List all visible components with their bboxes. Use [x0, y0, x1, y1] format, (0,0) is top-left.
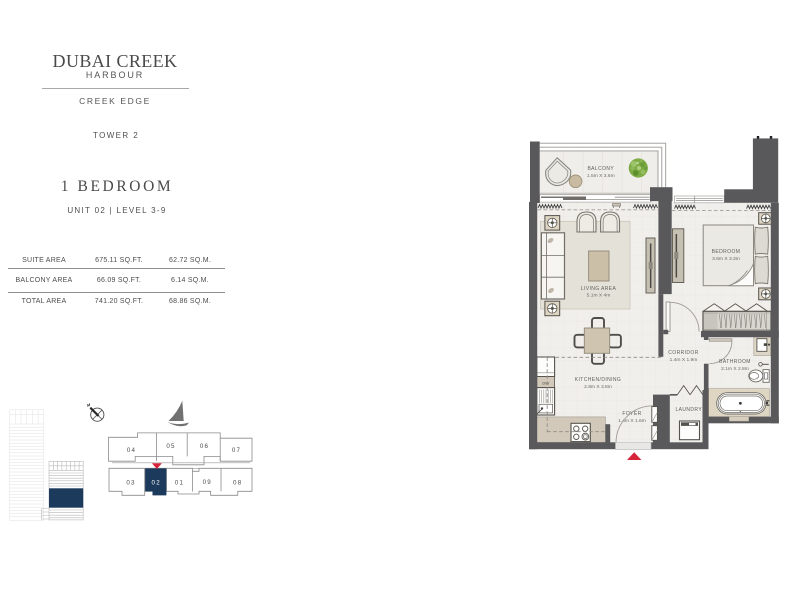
svg-text:02: 02 — [152, 480, 161, 487]
svg-text:05: 05 — [166, 443, 175, 450]
svg-text:3.6m X 3.3m: 3.6m X 3.3m — [712, 256, 740, 262]
svg-text:1.5m X 3.6m: 1.5m X 3.6m — [587, 173, 615, 179]
svg-text:BATHROOM: BATHROOM — [719, 359, 751, 365]
svg-text:LIVING AREA: LIVING AREA — [581, 286, 617, 292]
svg-text:08: 08 — [233, 480, 242, 487]
svg-text:1.4m X 1.9m: 1.4m X 1.9m — [670, 357, 698, 363]
svg-text:DW: DW — [542, 380, 549, 385]
svg-text:06: 06 — [200, 443, 209, 450]
svg-text:BEDROOM: BEDROOM — [712, 249, 741, 255]
svg-text:CORRIDOR: CORRIDOR — [668, 350, 698, 356]
svg-text:BALCONY: BALCONY — [587, 166, 614, 172]
svg-text:5.1m X 4m: 5.1m X 4m — [587, 293, 611, 299]
svg-text:KITCHEN/DINING: KITCHEN/DINING — [575, 377, 621, 383]
svg-text:07: 07 — [232, 447, 241, 454]
svg-text:2.1m X 2.8m: 2.1m X 2.8m — [721, 366, 749, 372]
svg-text:2.8m X 3.8m: 2.8m X 3.8m — [584, 384, 612, 390]
svg-text:FOYER: FOYER — [622, 411, 641, 417]
svg-text:01: 01 — [175, 480, 184, 487]
svg-text:LAUNDRY: LAUNDRY — [675, 407, 702, 413]
svg-text:09: 09 — [203, 479, 212, 486]
svg-text:03: 03 — [126, 480, 135, 487]
svg-text:1.4m X 1.6m: 1.4m X 1.6m — [618, 418, 646, 424]
svg-text:04: 04 — [127, 447, 136, 454]
